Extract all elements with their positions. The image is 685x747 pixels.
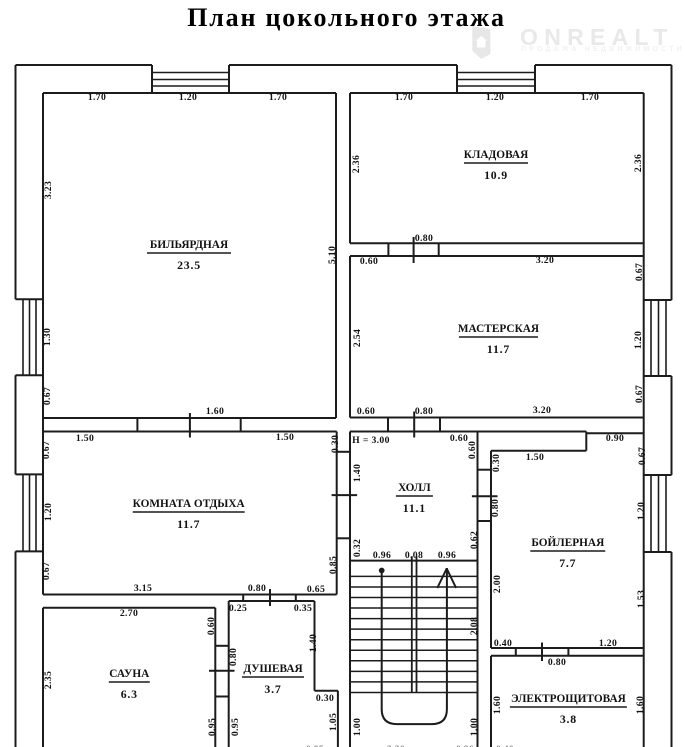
svg-text:0.60: 0.60 — [450, 433, 468, 444]
svg-text:1.40: 1.40 — [308, 634, 319, 652]
svg-text:2.36: 2.36 — [633, 154, 644, 172]
svg-text:1.60: 1.60 — [635, 696, 646, 714]
svg-text:1.20: 1.20 — [599, 638, 617, 649]
svg-text:3.15: 3.15 — [134, 583, 152, 594]
svg-text:1.50: 1.50 — [76, 433, 94, 444]
svg-text:1.70: 1.70 — [269, 92, 287, 103]
svg-text:H = 3.00: H = 3.00 — [352, 435, 390, 446]
svg-text:1.00: 1.00 — [469, 718, 480, 736]
svg-text:0.80: 0.80 — [248, 583, 266, 594]
svg-text:1.20: 1.20 — [636, 502, 647, 520]
svg-text:0.80: 0.80 — [415, 406, 433, 417]
svg-text:3.20: 3.20 — [533, 405, 551, 416]
svg-text:11.7: 11.7 — [177, 517, 200, 531]
svg-text:3.7: 3.7 — [264, 682, 281, 696]
svg-text:5.10: 5.10 — [327, 246, 338, 264]
svg-text:0.95: 0.95 — [230, 718, 241, 736]
svg-text:0.80: 0.80 — [490, 499, 501, 517]
svg-text:1.70: 1.70 — [395, 92, 413, 103]
svg-text:7.7: 7.7 — [559, 556, 576, 570]
svg-text:1.40: 1.40 — [352, 464, 363, 482]
svg-text:0.67: 0.67 — [634, 385, 645, 403]
svg-text:1.20: 1.20 — [179, 92, 197, 103]
svg-text:0.60: 0.60 — [206, 617, 217, 635]
svg-text:0.85: 0.85 — [328, 556, 339, 574]
svg-text:0.25: 0.25 — [229, 603, 247, 614]
svg-text:1.00: 1.00 — [352, 718, 363, 736]
svg-text:10.9: 10.9 — [484, 168, 508, 182]
svg-text:КОМНАТА ОТДЫХА: КОМНАТА ОТДЫХА — [133, 498, 246, 510]
svg-text:0.62: 0.62 — [469, 531, 480, 549]
svg-text:2.54: 2.54 — [352, 329, 363, 347]
svg-text:КЛАДОВАЯ: КЛАДОВАЯ — [464, 149, 528, 161]
svg-text:1.05: 1.05 — [328, 713, 339, 731]
svg-text:0.65: 0.65 — [307, 584, 325, 595]
svg-text:3.8: 3.8 — [560, 712, 577, 726]
svg-text:1.70: 1.70 — [88, 92, 106, 103]
svg-text:0.96: 0.96 — [373, 550, 391, 561]
svg-text:0.96: 0.96 — [438, 550, 456, 561]
svg-text:0.32: 0.32 — [352, 539, 363, 557]
svg-text:0.67: 0.67 — [637, 447, 648, 465]
svg-text:1.50: 1.50 — [276, 432, 294, 443]
svg-text:0.80: 0.80 — [228, 648, 239, 666]
svg-text:0.60: 0.60 — [360, 256, 378, 267]
svg-text:0.60: 0.60 — [357, 406, 375, 417]
svg-text:1.60: 1.60 — [206, 406, 224, 417]
svg-text:ДУШЕВАЯ: ДУШЕВАЯ — [243, 663, 302, 675]
svg-text:1.53: 1.53 — [636, 590, 647, 608]
svg-text:2.08: 2.08 — [469, 617, 480, 635]
svg-text:0.60: 0.60 — [467, 441, 478, 459]
svg-text:1.60: 1.60 — [492, 696, 503, 714]
svg-text:11.7: 11.7 — [487, 342, 510, 356]
svg-text:1.70: 1.70 — [581, 92, 599, 103]
svg-text:0.67: 0.67 — [634, 263, 645, 281]
svg-text:1.20: 1.20 — [486, 92, 504, 103]
svg-text:0.08: 0.08 — [405, 550, 423, 561]
svg-text:2.35: 2.35 — [43, 671, 54, 689]
svg-text:3.20: 3.20 — [536, 255, 554, 266]
svg-text:1.20: 1.20 — [43, 503, 54, 521]
svg-text:2.00: 2.00 — [492, 575, 503, 593]
svg-text:0.35: 0.35 — [294, 603, 312, 614]
svg-text:БИЛЬЯРДНАЯ: БИЛЬЯРДНАЯ — [150, 239, 228, 251]
svg-text:2.36: 2.36 — [351, 155, 362, 173]
svg-text:САУНА: САУНА — [109, 668, 150, 680]
svg-text:2.70: 2.70 — [120, 608, 138, 619]
svg-text:0.80: 0.80 — [415, 233, 433, 244]
svg-text:3.23: 3.23 — [43, 181, 54, 199]
svg-text:0.67: 0.67 — [42, 387, 53, 405]
svg-text:23.5: 23.5 — [177, 258, 201, 272]
svg-text:БОЙЛЕРНАЯ: БОЙЛЕРНАЯ — [531, 537, 604, 549]
svg-text:0.67: 0.67 — [41, 562, 52, 580]
svg-text:ХОЛЛ: ХОЛЛ — [398, 482, 431, 494]
svg-text:МАСТЕРСКАЯ: МАСТЕРСКАЯ — [458, 323, 539, 335]
svg-text:ЭЛЕКТРОЩИТОВАЯ: ЭЛЕКТРОЩИТОВАЯ — [511, 693, 626, 705]
svg-text:1.50: 1.50 — [526, 452, 544, 463]
svg-text:1.20: 1.20 — [633, 331, 644, 349]
svg-text:0.95: 0.95 — [207, 718, 218, 736]
svg-text:1.30: 1.30 — [42, 328, 53, 346]
svg-text:0.80: 0.80 — [548, 657, 566, 668]
svg-text:0.30: 0.30 — [330, 435, 341, 453]
svg-text:0.90: 0.90 — [606, 433, 624, 444]
svg-text:0.30: 0.30 — [316, 693, 334, 704]
svg-text:0.40: 0.40 — [494, 638, 512, 649]
svg-text:6.3: 6.3 — [121, 687, 138, 701]
svg-text:11.1: 11.1 — [403, 501, 426, 515]
svg-text:0.30: 0.30 — [491, 454, 502, 472]
svg-text:0.67: 0.67 — [41, 441, 52, 459]
